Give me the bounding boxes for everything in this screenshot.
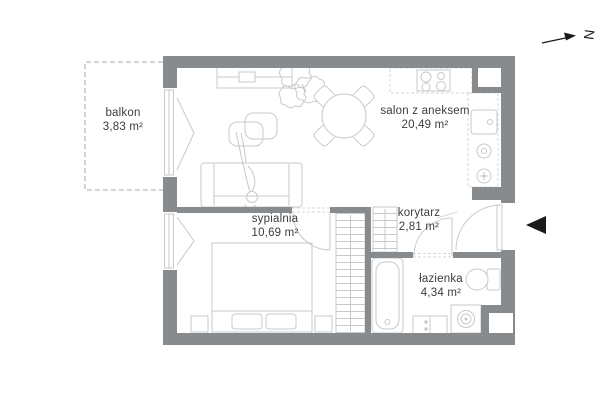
door-swing [177, 98, 194, 170]
north-arrow: N [542, 29, 598, 43]
nightstand [191, 316, 208, 332]
shaft [481, 305, 513, 333]
floor-plan: N balkon 3,83 m² salon z aneksem 20,49 m… [0, 0, 600, 400]
floor-plan-drawing: N [0, 0, 600, 400]
wall-left [163, 270, 177, 345]
room-label-sypialnia: sypialnia 10,69 m² [233, 212, 317, 240]
shaft-wall [472, 87, 501, 93]
room-name: balkon [105, 107, 140, 119]
room-label-salon: salon z aneksem 20,49 m² [377, 104, 473, 132]
washing-machine [451, 305, 481, 333]
pillow [232, 314, 262, 329]
counter-burner [477, 144, 491, 183]
salon-furniture [201, 62, 376, 207]
wall-left [163, 56, 177, 88]
bedroom-furniture [191, 243, 332, 332]
wall-hall-bath [371, 252, 413, 258]
wall-right [501, 56, 515, 203]
room-label-balkon: balkon 3,83 m² [83, 106, 163, 134]
door-swing [177, 217, 194, 265]
coffee-tables [229, 113, 277, 146]
door-swing [456, 205, 501, 250]
room-area: 3,83 m² [83, 120, 163, 134]
wall-left [163, 177, 177, 212]
room-area: 4,34 m² [407, 286, 475, 300]
wall-closet-top [330, 207, 371, 213]
room-label-korytarz: korytarz 2,81 m² [388, 206, 450, 234]
wall-hall-bath [453, 252, 501, 258]
wardrobe [336, 213, 365, 333]
kitchen-counter [390, 68, 472, 93]
cooktop [417, 70, 450, 91]
bathroom-cabinet [413, 316, 447, 334]
wall-stub-entry [472, 187, 501, 200]
room-name: sypialnia [252, 213, 299, 225]
kitchen-sink [471, 110, 497, 134]
room-label-lazienka: łazienka 4,34 m² [407, 272, 475, 300]
room-area: 10,69 m² [233, 226, 317, 240]
balcony-window [163, 88, 194, 177]
room-area: 20,49 m² [377, 118, 473, 132]
bedroom-window [163, 212, 194, 270]
north-label: N [581, 29, 598, 41]
dining-set [312, 84, 375, 147]
room-area: 2,81 m² [388, 220, 450, 234]
wall-closet-hall [365, 207, 371, 333]
nightstand [315, 316, 332, 332]
tv [239, 72, 255, 82]
room-name: salon z aneksem [380, 105, 469, 117]
wall-top [163, 56, 515, 68]
room-name: korytarz [398, 207, 441, 219]
bathtub [372, 258, 403, 333]
entrance-door [456, 205, 502, 250]
entrance-arrow [526, 216, 546, 234]
room-name: łazienka [419, 273, 463, 285]
pillow [266, 314, 296, 329]
wall-bottom [163, 333, 515, 345]
dining-table [322, 94, 366, 138]
